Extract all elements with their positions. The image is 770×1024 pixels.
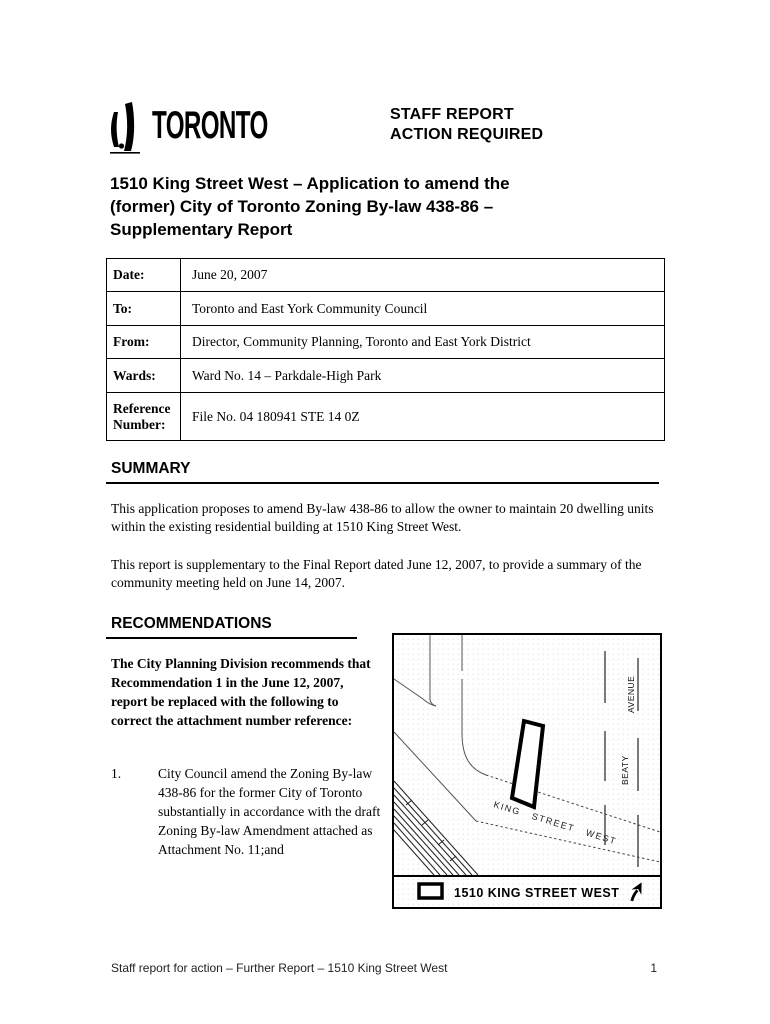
row-label: Wards: [107,359,181,393]
legend-label: 1510 KING STREET WEST [454,886,619,900]
info-table: Date: June 20, 2007 To: Toronto and East… [106,258,665,441]
recommendations-intro: The City Planning Division recommends th… [111,654,380,730]
page-title-line1: 1510 King Street West – Application to a… [110,172,675,195]
table-row-wards: Wards: Ward No. 14 – Parkdale-High Park [107,359,665,393]
report-type: STAFF REPORT ACTION REQUIRED [390,105,543,145]
report-page: TORONTO STAFF REPORT ACTION REQUIRED 151… [0,0,770,1024]
legend-site-symbol [419,884,442,898]
site-map: KING STREET WEST AVENUE BEATY 1510 KING … [392,633,662,909]
table-row-reference: Reference Number: File No. 04 180941 STE… [107,393,665,441]
row-label: To: [107,292,181,326]
row-value: Toronto and East York Community Council [181,292,665,326]
table-row-date: Date: June 20, 2007 [107,259,665,292]
row-value: Ward No. 14 – Parkdale-High Park [181,359,665,393]
page-title-line3: Supplementary Report [110,218,675,241]
row-label: Reference Number: [107,393,181,441]
row-value: June 20, 2007 [181,259,665,292]
row-label: From: [107,326,181,359]
page-number: 1 [650,961,657,975]
avenue-label: AVENUE [626,676,636,713]
page-title: 1510 King Street West – Application to a… [110,172,675,241]
row-value: Director, Community Planning, Toronto an… [181,326,665,359]
recommendation-number: 1. [111,764,158,859]
page-title-line2: (former) City of Toronto Zoning By-law 4… [110,195,675,218]
report-type-line2: ACTION REQUIRED [390,125,543,145]
page-footer: Staff report for action – Further Report… [111,961,657,975]
recommendation-text: City Council amend the Zoning By-law 438… [158,764,382,859]
table-row-from: From: Director, Community Planning, Toro… [107,326,665,359]
city-hall-icon [108,101,148,155]
table-row-to: To: Toronto and East York Community Coun… [107,292,665,326]
recommendation-item-1: 1. City Council amend the Zoning By-law … [111,764,382,859]
row-value: File No. 04 180941 STE 14 0Z [181,393,665,441]
footer-text: Staff report for action – Further Report… [111,961,447,975]
summary-heading: SUMMARY [106,459,659,484]
report-type-line1: STAFF REPORT [390,105,543,125]
summary-paragraph-2: This report is supplementary to the Fina… [111,556,667,592]
recommendations-heading: RECOMMENDATIONS [106,614,357,639]
row-label: Date: [107,259,181,292]
toronto-logo-text: TORONTO [152,101,268,151]
beaty-label: BEATY [620,755,630,785]
summary-paragraph-1: This application proposes to amend By-la… [111,500,667,536]
toronto-logo: TORONTO [108,101,339,155]
